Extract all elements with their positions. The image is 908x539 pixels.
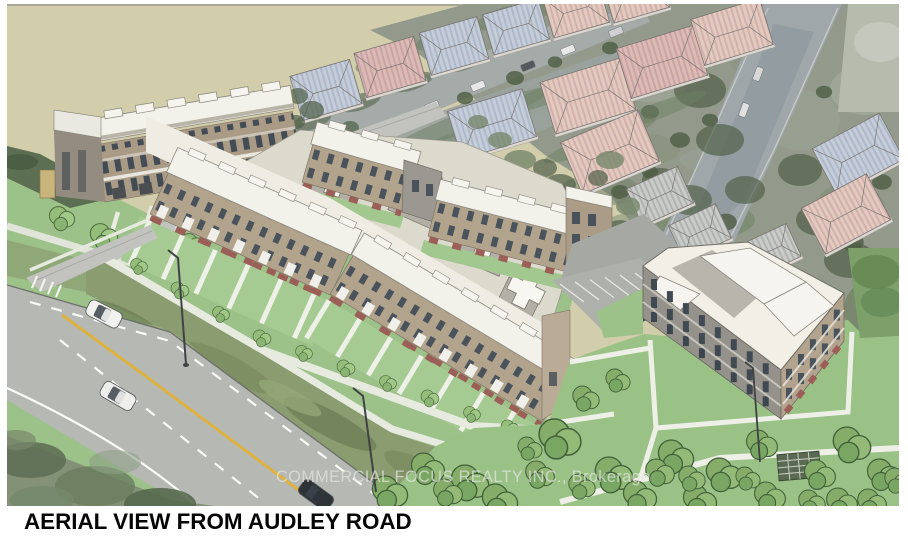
svg-text:AERIAL VIEW FROM AUDLEY ROAD: AERIAL VIEW FROM AUDLEY ROAD [24,509,412,534]
svg-text:COMMERCIAL FOCUS REALTY INC.,: COMMERCIAL FOCUS REALTY INC., Brokerage [276,468,650,486]
